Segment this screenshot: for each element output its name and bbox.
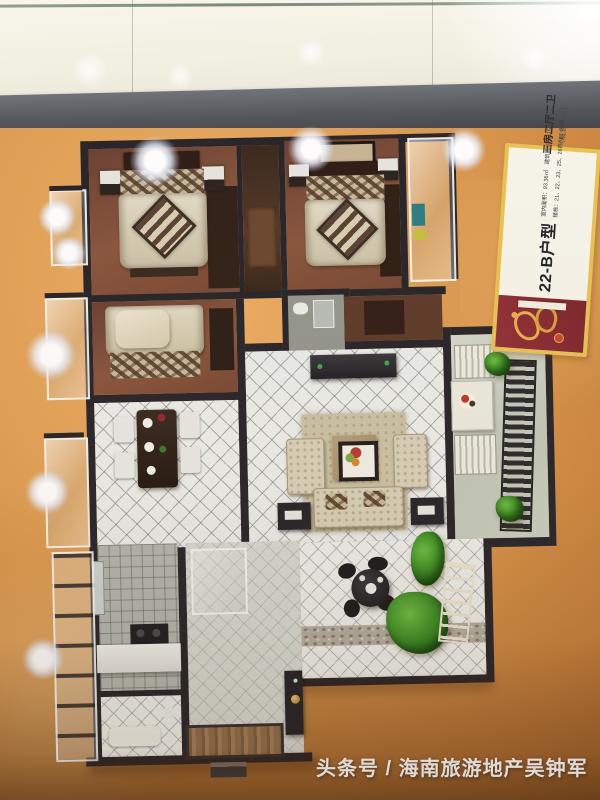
sofa-cushion-left — [325, 493, 347, 509]
developer-logo-icon — [495, 295, 586, 353]
sofa-cushion-right — [363, 491, 385, 507]
unit-number: 22-B户型 — [531, 222, 560, 293]
unit-building-line: 楼栋：21、22、23、25、26栋02、06房 — [550, 164, 562, 218]
garden-plate-small-1 — [359, 575, 365, 581]
bedroom1-nightstand-right — [202, 166, 225, 190]
bay-window-1-cap — [49, 185, 82, 191]
bathroom2-tub — [109, 726, 161, 747]
glass-seam-left — [132, 0, 133, 95]
terrace-plant-top — [484, 352, 511, 377]
led-light-icon — [26, 330, 76, 380]
side-table-left-card — [285, 511, 302, 520]
terrace-bench-bottom — [454, 434, 497, 475]
bedroom3-blanket — [110, 351, 201, 379]
bay-window-2-cap — [45, 292, 84, 298]
led-light-icon — [442, 128, 486, 172]
balcony2-yellow-stool — [413, 230, 425, 240]
bedroom1-foot-bench — [130, 267, 198, 278]
led-light-icon — [130, 136, 180, 186]
bedroom1-closet — [206, 186, 239, 289]
kitchen-counter — [97, 643, 182, 673]
unit-area-line: 室内面积：93.36㎡ 建筑面积：115.70㎡ — [538, 163, 550, 217]
tv-led-left — [317, 364, 322, 369]
armchair-right — [393, 434, 428, 489]
corridor-cabinet — [364, 300, 405, 335]
entry-wood-deck — [185, 723, 284, 759]
balcony2-teal-chair — [412, 204, 425, 226]
glass-reflection-4 — [520, 44, 548, 72]
sign-rotated-content: 22-B户型 室内面积：93.36㎡ 建筑面积：115.70㎡ 楼栋：21、22… — [495, 147, 597, 353]
led-light-icon — [52, 236, 86, 270]
watermark-text: 头条号 / 海南旅游地产吴钟军 — [316, 752, 588, 781]
sign-text-block: 22-B户型 室内面积：93.36㎡ 建筑面积：115.70㎡ 楼栋：21、22… — [499, 88, 600, 301]
tv-cabinet — [310, 353, 397, 379]
bedroom3-pillow — [115, 309, 170, 348]
unit-info-sign: 22-B户型 室内面积：93.36㎡ 建筑面积：115.70㎡ 楼栋：21、22… — [491, 143, 600, 357]
glass-reflection-3 — [296, 38, 326, 68]
entry-shower-glass — [190, 548, 247, 615]
led-light-icon — [25, 470, 69, 514]
glass-reflection-1 — [72, 52, 108, 88]
unit-layout-block: 三房二厅二卫 （概念四房） — [539, 94, 571, 156]
door-peephole — [293, 679, 297, 683]
hall-closet-front — [247, 207, 277, 268]
garden-plate-small-2 — [377, 577, 383, 583]
bay-window-3-cap — [44, 432, 84, 438]
led-light-icon — [288, 126, 334, 172]
led-light-icon — [38, 198, 76, 236]
dining-chair-2 — [114, 452, 135, 478]
terrace-plant-bottom — [495, 495, 524, 522]
logo-seal-red — [554, 333, 565, 344]
glass-reflection-2 — [166, 62, 194, 90]
dining-chair-4 — [180, 447, 201, 473]
bedroom3-side-bench — [209, 308, 234, 371]
bathroom2-sink — [162, 707, 175, 718]
apartment-model — [55, 121, 565, 787]
armchair-left — [286, 438, 325, 495]
bathroom1-shower-tray — [313, 300, 335, 328]
bathroom1-toilet — [293, 302, 308, 314]
unit-details: 室内面积：93.36㎡ 建筑面积：115.70㎡ 楼栋：21、22、23、25、… — [538, 159, 563, 218]
dining-chair-1 — [113, 416, 134, 442]
model-showroom-photo: 22-B户型 室内面积：93.36㎡ 建筑面积：115.70㎡ 楼栋：21、22… — [0, 0, 600, 800]
tv-led-right — [384, 360, 389, 365]
dining-chair-3 — [179, 412, 200, 438]
side-table-right-card — [418, 505, 435, 514]
led-light-icon — [22, 638, 64, 680]
